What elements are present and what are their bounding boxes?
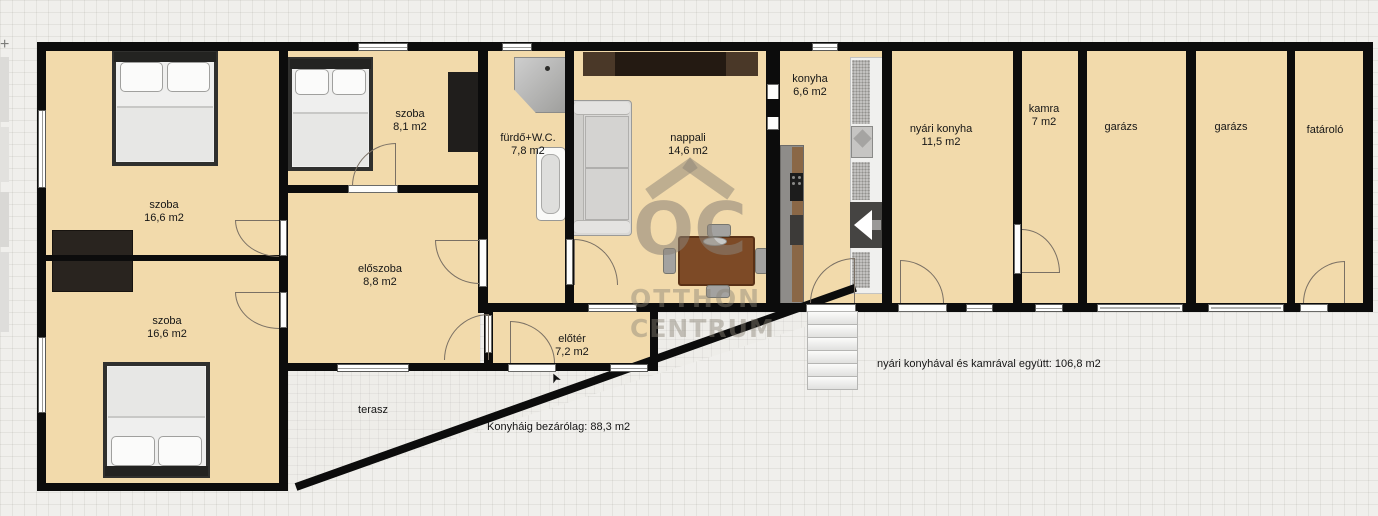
room-label-szoba-top: szoba16,6 m2 [99, 186, 229, 225]
door-opening [1300, 304, 1328, 312]
wall-between-bedrooms [46, 255, 279, 261]
room-label-konyha: konyha6,6 m2 [745, 60, 875, 99]
room-label-eloszoba: előszoba8,8 m2 [315, 250, 445, 289]
window [1035, 304, 1063, 312]
shower-head [545, 66, 550, 71]
stairs [807, 312, 858, 390]
garage-door [1208, 304, 1284, 312]
window [38, 337, 46, 413]
sideboard [583, 52, 758, 76]
room-label-terasz: terasz [308, 391, 438, 417]
edge-strip [0, 192, 9, 247]
window [358, 43, 408, 51]
window [812, 43, 838, 51]
door-opening [348, 185, 398, 193]
room-label-nappali: nappali14,6 m2 [623, 119, 753, 158]
room-label-szoba-small: szoba8,1 m2 [345, 95, 475, 134]
cooktop [790, 173, 803, 201]
door-opening [280, 292, 287, 328]
watermark-logo: OC OTTHON CENTRUM [630, 168, 750, 353]
wall-bottom-left-block [37, 483, 288, 491]
sink [851, 126, 873, 158]
annotation-total-with-summer-kitchen: nyári konyhával és kamrával együtt: 106,… [877, 358, 1101, 370]
window [502, 43, 532, 51]
floor-plan: + [0, 0, 1378, 516]
room-label-fatarolo: fatároló [1260, 111, 1378, 137]
edge-strip [0, 57, 9, 122]
wall-right [1363, 42, 1373, 312]
wall-konyha-nyari [882, 42, 892, 303]
door-opening [1014, 224, 1021, 274]
watermark-text-line1: OTTHON [630, 284, 750, 313]
watermark-monogram: OC [630, 190, 750, 268]
kitchen-counter [780, 145, 804, 304]
annotation-total-to-kitchen: Konyháig bezárólag: 88,3 m2 [487, 421, 630, 433]
room-label-furdo: fürdő+W.C.7,8 m2 [463, 119, 593, 158]
door-opening [898, 304, 947, 312]
window [610, 364, 648, 372]
bathtub [536, 147, 566, 221]
door-opening [280, 220, 287, 256]
wall-top [37, 42, 1373, 51]
room-label-eloter: előtér7,2 m2 [507, 320, 637, 359]
watermark-text-line2: CENTRUM [630, 314, 750, 343]
cursor-plus-marker: + [0, 36, 9, 54]
garage-door [1097, 304, 1183, 312]
wall-kamra-garazs [1078, 51, 1087, 303]
double-bed [103, 362, 210, 478]
room-floor-garazs-2 [1194, 49, 1289, 305]
room-floor-garazs-1 [1085, 49, 1188, 305]
dresser [52, 230, 133, 292]
wall-garazs-fatarolo [1287, 51, 1295, 303]
edge-strip [0, 127, 9, 182]
window [966, 304, 993, 312]
room-label-szoba-bottom: szoba16,6 m2 [102, 302, 232, 341]
door-opening [479, 239, 487, 287]
counter-top [852, 162, 870, 200]
stove [850, 202, 884, 248]
wall-garazs-garazs [1186, 51, 1196, 303]
door-opening [566, 239, 573, 285]
door-opening [508, 364, 556, 372]
window [337, 364, 409, 372]
double-bed [112, 50, 218, 166]
pass-through-mullion [767, 99, 779, 117]
wall-vertical [279, 42, 288, 491]
window [38, 110, 46, 188]
edge-strip [0, 252, 9, 332]
